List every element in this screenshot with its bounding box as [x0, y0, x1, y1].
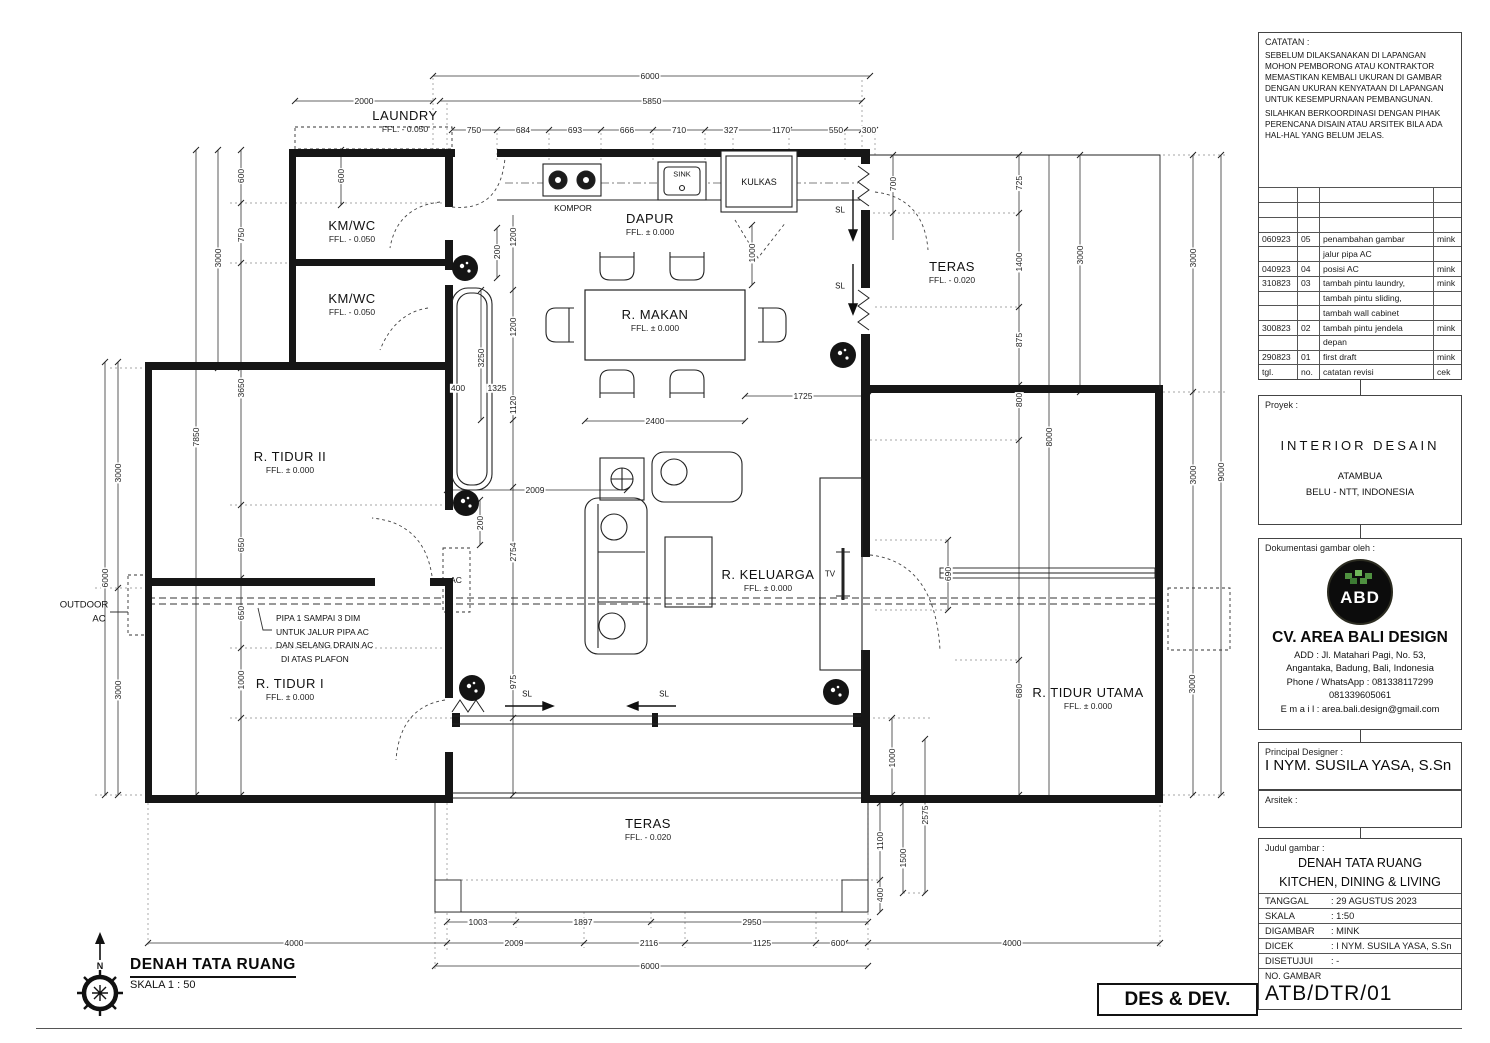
dim-label: 2009 [525, 486, 546, 495]
proyek-panel: Proyek : INTERIOR DESAIN ATAMBUA BELU - … [1258, 395, 1462, 525]
titleblock-connector [1360, 380, 1361, 395]
dim-label: 1100 [876, 831, 885, 851]
dim-label: 4000 [1002, 939, 1023, 948]
dim-label: 693 [567, 126, 583, 135]
no-gambar-label: NO. GAMBAR [1265, 971, 1455, 981]
sl-label-1: SL [835, 206, 845, 215]
dim-label: 750 [466, 126, 482, 135]
dim-label: 680 [1015, 683, 1024, 699]
meta-row-skala: SKALA: 1:50 [1259, 908, 1461, 923]
dim-label: 6000 [640, 962, 661, 971]
meta-row-tanggal: TANGGAL: 29 AGUSTUS 2023 [1259, 893, 1461, 908]
dim-label: 2754 [509, 542, 518, 563]
room-laundry: LAUNDRY FFL. - 0.050 [372, 108, 437, 134]
dim-label: 3000 [1076, 245, 1085, 266]
sl-label-2: SL [835, 282, 845, 291]
dim-label: 800 [1015, 392, 1024, 408]
dim-label: 8000 [1045, 427, 1054, 448]
dim-label: 5850 [642, 97, 663, 106]
abd-logo-icon: ABD [1327, 559, 1393, 625]
dim-label: 4000 [284, 939, 305, 948]
meta-row-digambar: DIGAMBAR: MINK [1259, 923, 1461, 938]
north-label: N [97, 961, 104, 971]
room-tidur-2: R. TIDUR II FFL. ± 0.000 [254, 449, 326, 475]
outdoor-ac-label-1: OUTDOOR [60, 600, 109, 611]
dim-label: 2000 [354, 97, 375, 106]
dim-label: 1200 [509, 227, 518, 248]
revision-row: tambah wall cabinet [1259, 305, 1461, 320]
dim-label: 3000 [114, 680, 123, 701]
des-dev-stamp: DES & DEV. [1097, 983, 1258, 1016]
revision-header-row: tgl.no. catatan revisicek [1259, 364, 1461, 379]
dim-label: 400 [450, 384, 466, 393]
dim-label: 690 [944, 566, 953, 582]
company-name: CV. AREA BALI DESIGN [1259, 629, 1461, 647]
dim-label: 600 [830, 939, 846, 948]
dim-label: 3250 [477, 348, 486, 369]
arsitek-label: Arsitek : [1259, 791, 1461, 805]
dim-label: 750 [237, 227, 246, 243]
catatan-paragraph-2: SILAHKAN BERKOORDINASI DENGAN PIHAK PERE… [1259, 105, 1461, 151]
room-kmwc-1: KM/WC FFL. - 0.050 [328, 218, 375, 244]
drawing-title-line2: KITCHEN, DINING & LIVING [1259, 873, 1461, 892]
dim-label: 3000 [214, 248, 223, 269]
dim-label: 200 [493, 244, 502, 260]
dim-label: 2400 [645, 417, 666, 426]
sl-label-4: SL [659, 690, 669, 699]
page-border-line [36, 1028, 1462, 1029]
dim-label: 2575 [921, 805, 930, 826]
catatan-paragraph-1: SEBELUM DILAKSANAKAN DI LAPANGAN MOHON P… [1259, 47, 1461, 105]
dim-label: 1000 [888, 748, 897, 769]
dim-label: 700 [889, 176, 898, 192]
revision-row: depan [1259, 335, 1461, 350]
dim-label: 2009 [504, 939, 525, 948]
judul-panel: Judul gambar : DENAH TATA RUANG KITCHEN,… [1258, 838, 1462, 1010]
dim-label: 3000 [1189, 248, 1198, 269]
dim-label: 1170 [771, 126, 791, 135]
revision-table: 06092305 penambahan gambarmink jalur pip… [1259, 187, 1461, 379]
meta-row-dicek: DICEK: I NYM. SUSILA YASA, S.Sn [1259, 938, 1461, 953]
ac-label: AC [450, 575, 462, 585]
dim-label: 710 [671, 126, 687, 135]
dim-label: 600 [237, 168, 246, 184]
dim-label: 650 [237, 537, 246, 553]
revision-row: 06092305 penambahan gambarmink [1259, 232, 1461, 247]
project-location: ATAMBUA BELU - NTT, INDONESIA [1259, 469, 1461, 501]
dim-label: 684 [515, 126, 531, 135]
arsitek-panel: Arsitek : [1258, 790, 1462, 828]
dim-label: 975 [509, 674, 518, 690]
titleblock-connector [1360, 525, 1361, 538]
dim-label: 1200 [509, 317, 518, 338]
dim-label: 327 [723, 126, 739, 135]
dim-label: 3650 [237, 378, 246, 399]
dim-label: 200 [476, 515, 485, 531]
project-name: INTERIOR DESAIN [1259, 438, 1461, 453]
room-tidur-utama: R. TIDUR UTAMA FFL. ± 0.000 [1032, 685, 1143, 711]
dim-label: 7850 [192, 427, 201, 448]
no-gambar-block: NO. GAMBAR ATB/DTR/01 [1259, 968, 1461, 1008]
dim-label: 650 [237, 605, 246, 621]
sliding-arrows [505, 190, 857, 710]
kompor-label: KOMPOR [554, 203, 592, 213]
dim-label: 2950 [742, 918, 763, 927]
meta-row-disetujui: DISETUJUI: - [1259, 953, 1461, 968]
dim-label: 1325 [487, 384, 508, 393]
dim-label: 1000 [748, 243, 757, 264]
room-teras-atas: TERAS FFL. - 0.020 [929, 259, 975, 285]
dim-label: 1500 [899, 848, 908, 869]
revision-row: 31082303 tambah pintu laundry,mink [1259, 276, 1461, 291]
revision-row: jalur pipa AC [1259, 246, 1461, 261]
dim-label: 300 [861, 126, 877, 135]
revision-row: tambah pintu sliding, [1259, 291, 1461, 306]
dim-label: 1125 [752, 939, 772, 948]
dim-label: 875 [1015, 332, 1024, 348]
tv-label: TV [825, 570, 835, 579]
living-furniture [585, 452, 862, 670]
sheet-title: DENAH TATA RUANG [130, 956, 296, 978]
dim-label: 725 [1015, 175, 1024, 191]
no-gambar-value: ATB/DTR/01 [1265, 982, 1455, 1006]
dim-label: 2116 [639, 939, 659, 948]
dim-label: 1000 [237, 670, 246, 691]
room-keluarga: R. KELUARGA FFL. ± 0.000 [722, 567, 815, 593]
dokumentasi-label: Dokumentasi gambar oleh : [1259, 539, 1461, 553]
sl-label-3: SL [522, 690, 532, 699]
dim-label: 400 [876, 887, 885, 903]
drawing-title-line1: DENAH TATA RUANG [1259, 854, 1461, 873]
proyek-label: Proyek : [1259, 396, 1461, 410]
room-kmwc-2: KM/WC FFL. - 0.050 [328, 291, 375, 317]
compass-icon [77, 932, 123, 1016]
dim-label: 600 [337, 168, 346, 184]
dim-label: 9000 [1217, 462, 1226, 483]
judul-label: Judul gambar : [1259, 839, 1461, 853]
room-tidur-1: R. TIDUR I FFL. ± 0.000 [256, 676, 324, 702]
dokumentasi-panel: Dokumentasi gambar oleh : ABD CV. AREA B… [1258, 538, 1462, 730]
room-dapur: DAPUR FFL. ± 0.000 [626, 211, 674, 237]
company-address: ADD : Jl. Matahari Pagi, No. 53, Anganta… [1259, 649, 1461, 716]
dim-label: 6000 [640, 72, 661, 81]
dim-label: 6000 [101, 568, 110, 589]
titleblock-connector [1360, 730, 1361, 742]
notes-revision-panel: CATATAN : SEBELUM DILAKSANAKAN DI LAPANG… [1258, 32, 1462, 380]
designer-label: Principal Designer : [1259, 743, 1461, 757]
revision-row: 29082301 first draftmink [1259, 350, 1461, 365]
ac-pipe-note: PIPA 1 SAMPAI 3 DIM UNTUK JALUR PIPA AC … [276, 612, 373, 666]
dim-label: 3000 [1188, 674, 1197, 695]
dim-label: 1897 [573, 918, 594, 927]
kulkas-label: KULKAS [741, 177, 777, 187]
catatan-label: CATATAN : [1259, 33, 1461, 47]
dim-label: 3000 [114, 463, 123, 484]
room-teras-bawah: TERAS FFL. - 0.020 [625, 816, 671, 842]
dim-label: 1003 [468, 918, 489, 927]
sheet-scale: SKALA 1 : 50 [130, 979, 195, 991]
dim-label: 666 [619, 126, 635, 135]
dim-label: 3000 [1189, 465, 1198, 486]
revision-row: 04092304 posisi ACmink [1259, 261, 1461, 276]
walls [145, 149, 1163, 803]
designer-name: I NYM. SUSILA YASA, S.Sn [1259, 757, 1461, 774]
sink-label: SINK [673, 170, 691, 179]
dim-label: 1725 [793, 392, 814, 401]
dim-label: 1120 [509, 395, 518, 415]
note-leader [258, 608, 272, 630]
revision-row: 30082302 tambah pintu jendelamink [1259, 320, 1461, 335]
dim-label: 550 [828, 126, 844, 135]
outdoor-ac-label-2: AC [92, 614, 105, 625]
room-makan: R. MAKAN FFL. ± 0.000 [622, 307, 689, 333]
drawing-sheet: { "title_block": { "catatan": { "label":… [0, 0, 1490, 1043]
designer-panel: Principal Designer : I NYM. SUSILA YASA,… [1258, 742, 1462, 790]
dim-label: 1400 [1015, 252, 1024, 273]
